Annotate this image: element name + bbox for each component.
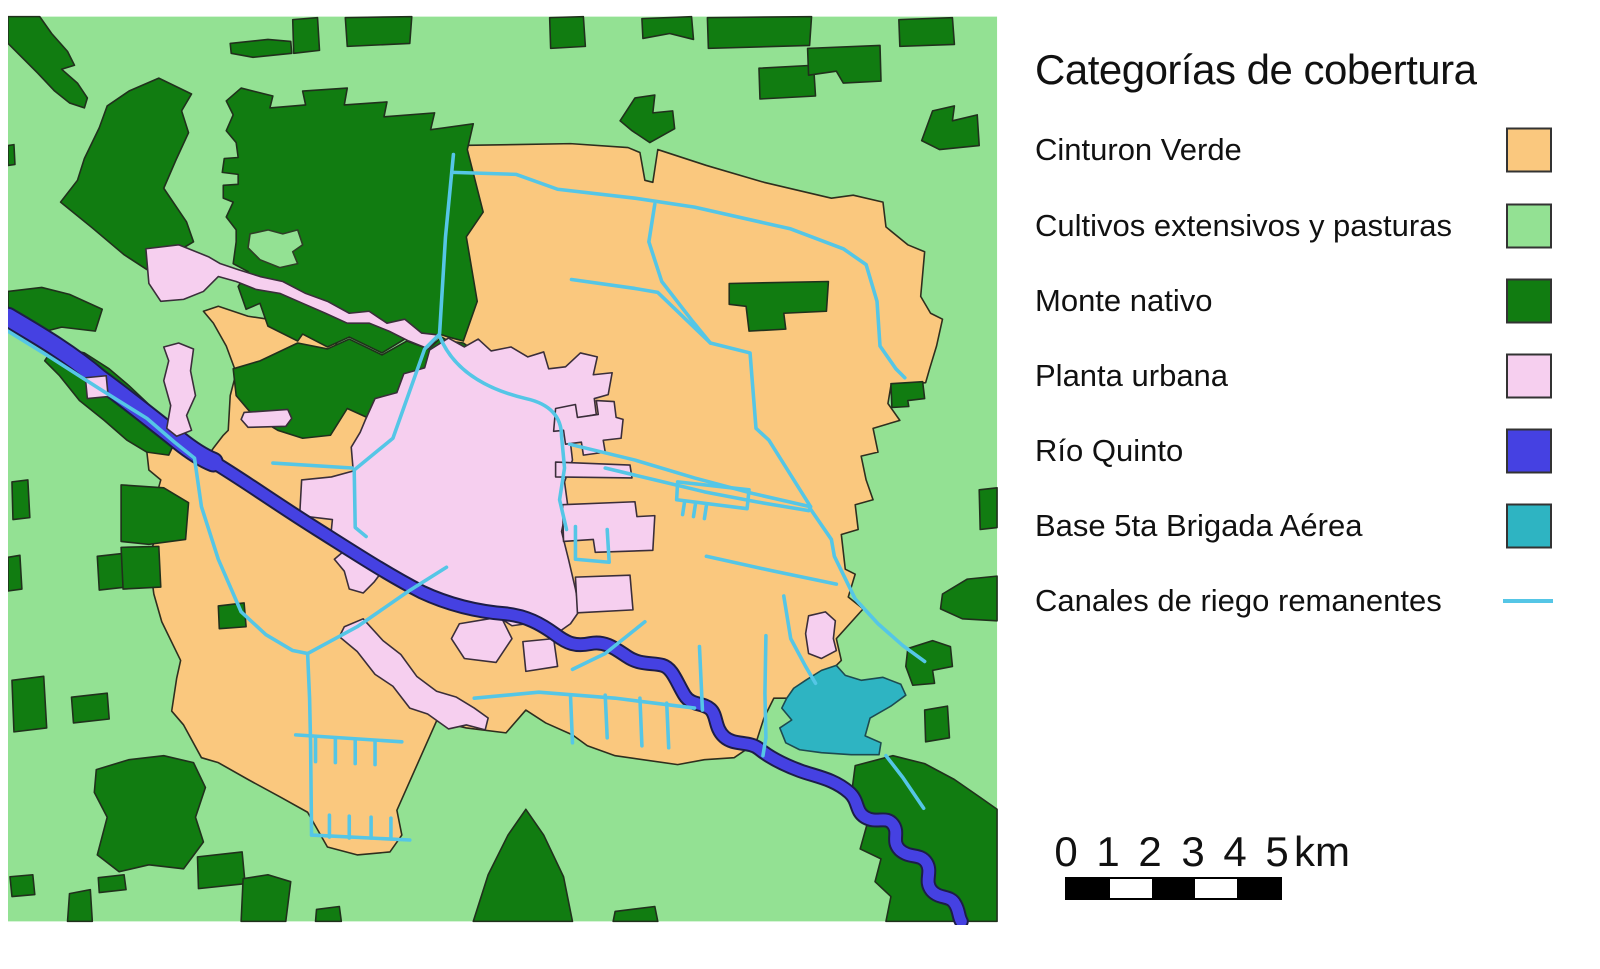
scale-unit-label: km — [1294, 828, 1350, 876]
legend-item-label: Cultivos extensivos y pasturas — [1035, 208, 1452, 244]
legend-item-cinturon-verde: Cinturon Verde — [1035, 125, 1575, 175]
legend-item-base-brigada: Base 5ta Brigada Aérea — [1035, 501, 1575, 551]
scale-segment — [1152, 879, 1195, 898]
legend-item-label: Cinturon Verde — [1035, 132, 1242, 168]
legend-item-label: Canales de riego remanentes — [1035, 583, 1442, 619]
legend-title: Categorías de cobertura — [1035, 46, 1476, 94]
legend-item-label: Monte nativo — [1035, 283, 1213, 319]
map-canvas — [8, 13, 1005, 925]
planta-urbana-swatch — [1506, 354, 1552, 399]
cinturon-verde-swatch — [1506, 128, 1552, 173]
legend-item-label: Planta urbana — [1035, 358, 1228, 394]
canales-line-swatch — [1503, 599, 1553, 603]
legend-item-cultivos: Cultivos extensivos y pasturas — [1035, 201, 1575, 251]
scale-segment — [1195, 879, 1238, 898]
rio-quinto-swatch — [1506, 429, 1552, 474]
legend-item-monte-nativo: Monte nativo — [1035, 276, 1575, 326]
legend-item-label: Base 5ta Brigada Aérea — [1035, 508, 1362, 544]
scale-bar-segments — [1065, 877, 1282, 900]
scale-segment — [1110, 879, 1153, 898]
legend-item-planta-urbana: Planta urbana — [1035, 351, 1575, 401]
scale-segment — [1237, 879, 1280, 898]
legend-item-label: Río Quinto — [1035, 433, 1183, 469]
page: Categorías de cobertura Cinturon Verde C… — [0, 0, 1600, 969]
base-brigada-swatch — [1506, 504, 1552, 549]
legend-item-canales: Canales de riego remanentes — [1035, 576, 1575, 626]
scale-segment — [1067, 879, 1110, 898]
monte-nativo-swatch — [1506, 279, 1552, 324]
cultivos-swatch — [1506, 204, 1552, 249]
legend-item-rio-quinto: Río Quinto — [1035, 426, 1575, 476]
land-cover-map — [8, 13, 1005, 925]
